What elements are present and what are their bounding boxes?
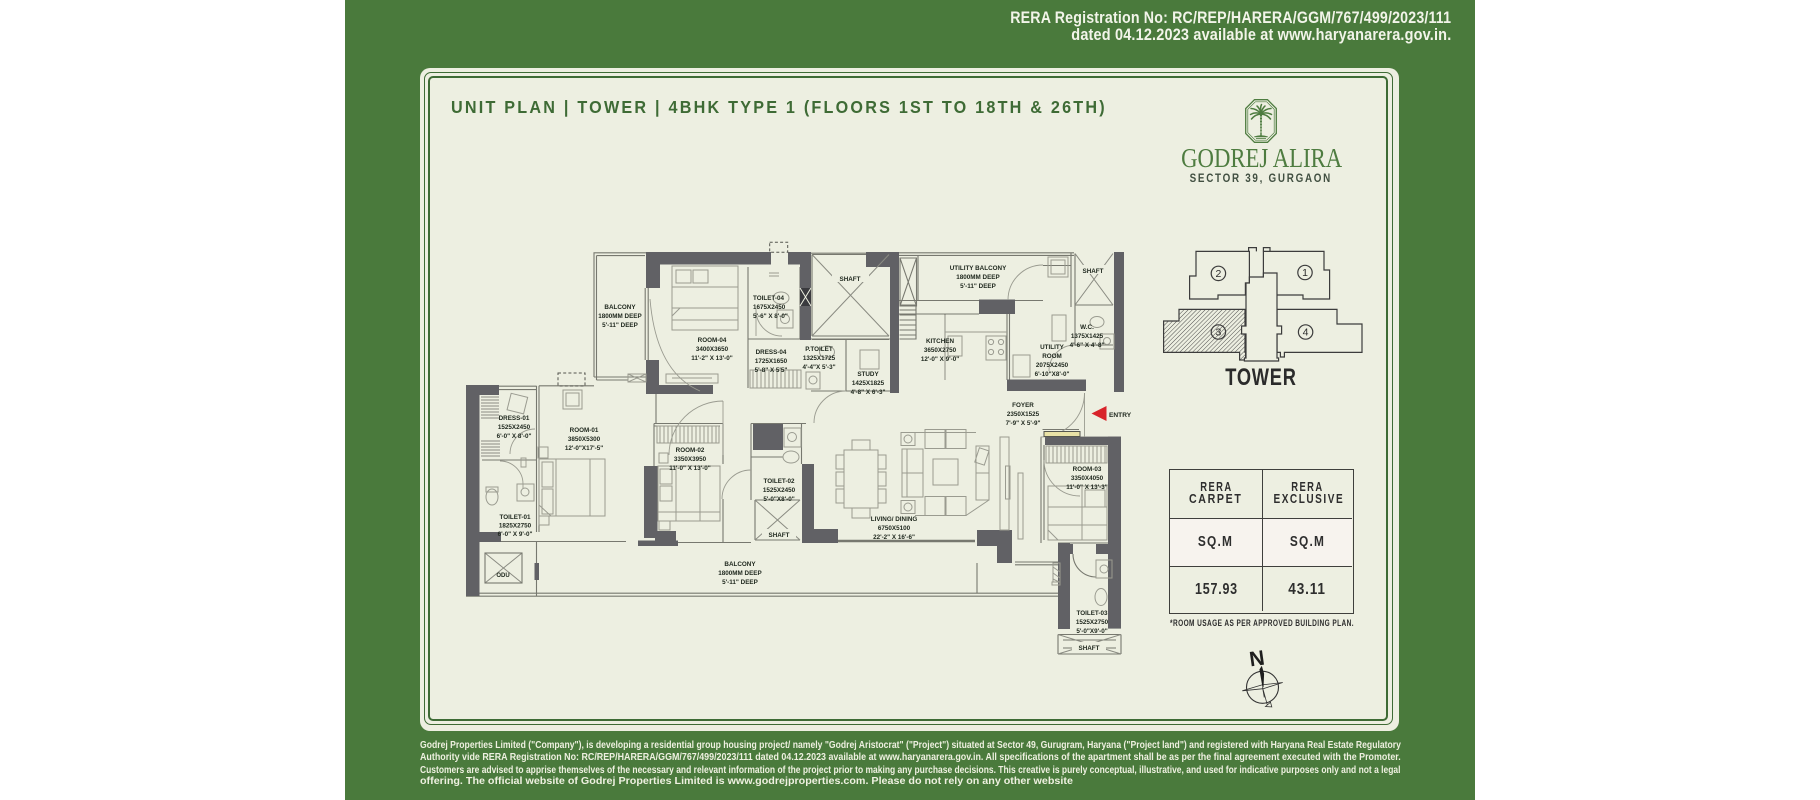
svg-text:3350X4050: 3350X4050 — [1071, 475, 1104, 482]
svg-text:DRESS-01: DRESS-01 — [499, 415, 530, 422]
svg-text:P.TOILET: P.TOILET — [805, 346, 833, 353]
svg-text:5'-11" DEEP: 5'-11" DEEP — [722, 579, 758, 586]
svg-text:1375X1425: 1375X1425 — [1071, 333, 1104, 340]
svg-text:ROOM-01: ROOM-01 — [570, 427, 599, 434]
svg-text:ROOM: ROOM — [1042, 353, 1062, 360]
svg-text:2075X2450: 2075X2450 — [1036, 362, 1069, 369]
svg-text:3850X5300: 3850X5300 — [568, 436, 601, 443]
svg-text:SHAFT: SHAFT — [769, 532, 790, 539]
svg-text:4: 4 — [1303, 327, 1309, 339]
svg-text:1825X2750: 1825X2750 — [499, 523, 532, 530]
svg-text:11'-0" X 13'-3": 11'-0" X 13'-3" — [1066, 484, 1108, 491]
svg-text:SHAFT: SHAFT — [1079, 645, 1100, 652]
svg-text:BALCONY: BALCONY — [604, 304, 636, 311]
svg-text:7'-9" X 5'-9": 7'-9" X 5'-9" — [1006, 420, 1041, 427]
svg-text:BALCONY: BALCONY — [724, 561, 756, 568]
svg-text:1425X1825: 1425X1825 — [852, 380, 885, 387]
svg-text:11'-0" X 13'-0": 11'-0" X 13'-0" — [669, 465, 711, 472]
svg-text:ROOM-04: ROOM-04 — [698, 337, 727, 344]
svg-text:SHAFT: SHAFT — [840, 276, 861, 283]
svg-text:5'-11" DEEP: 5'-11" DEEP — [960, 283, 996, 290]
svg-text:STUDY: STUDY — [857, 371, 879, 378]
svg-text:TOILET-02: TOILET-02 — [763, 478, 795, 485]
svg-text:2: 2 — [1215, 268, 1221, 280]
svg-text:ROOM-02: ROOM-02 — [676, 447, 705, 454]
svg-text:3: 3 — [1215, 327, 1221, 339]
svg-text:1725X1650: 1725X1650 — [755, 358, 788, 365]
svg-text:5'-8" X 5'5": 5'-8" X 5'5" — [755, 367, 788, 374]
svg-text:1800MM DEEP: 1800MM DEEP — [956, 274, 999, 281]
svg-text:KITCHEN: KITCHEN — [926, 338, 954, 345]
svg-text:UTILITY BALCONY: UTILITY BALCONY — [950, 265, 1007, 272]
svg-text:6'-10"X8'-0": 6'-10"X8'-0" — [1035, 371, 1070, 378]
svg-text:1325X1725: 1325X1725 — [803, 355, 836, 362]
svg-text:TOILET-03: TOILET-03 — [1076, 610, 1108, 617]
svg-text:5'-0"X8'-0": 5'-0"X8'-0" — [763, 496, 794, 503]
svg-text:6750X5100: 6750X5100 — [878, 525, 911, 532]
svg-text:TOILET-01: TOILET-01 — [499, 514, 531, 521]
svg-text:1525X2750: 1525X2750 — [1076, 619, 1109, 626]
svg-text:ENTRY: ENTRY — [1109, 412, 1132, 419]
svg-text:W.C.: W.C. — [1080, 324, 1094, 331]
svg-text:LIVING/ DINING: LIVING/ DINING — [871, 516, 918, 523]
svg-text:12'-0"X17'-5": 12'-0"X17'-5" — [565, 445, 603, 452]
svg-text:3350X3950: 3350X3950 — [674, 456, 707, 463]
svg-text:TOILET-04: TOILET-04 — [753, 295, 785, 302]
svg-text:FOYER: FOYER — [1012, 402, 1034, 409]
svg-text:1: 1 — [1302, 267, 1308, 279]
svg-text:4'-6" X 4'-8": 4'-6" X 4'-8" — [1070, 342, 1105, 349]
svg-text:12'-0" X 9'-0": 12'-0" X 9'-0" — [921, 356, 959, 363]
svg-text:1525X2450: 1525X2450 — [763, 487, 796, 494]
svg-text:6'-0" X 9'-0": 6'-0" X 9'-0" — [498, 531, 533, 538]
svg-text:3650X2750: 3650X2750 — [924, 347, 957, 354]
svg-text:ROOM-03: ROOM-03 — [1073, 466, 1102, 473]
svg-text:5'-11" DEEP: 5'-11" DEEP — [602, 322, 638, 329]
svg-text:4'-8" X 6'-3": 4'-8" X 6'-3" — [851, 389, 886, 396]
svg-text:1675X2450: 1675X2450 — [753, 304, 786, 311]
svg-text:UTILITY: UTILITY — [1040, 344, 1065, 351]
svg-text:N: N — [1248, 647, 1266, 672]
svg-text:SHAFT: SHAFT — [1083, 268, 1104, 275]
svg-text:11'-2" X 13'-0": 11'-2" X 13'-0" — [691, 355, 733, 362]
svg-text:22'-2" X 16'-6": 22'-2" X 16'-6" — [873, 534, 915, 541]
svg-text:6'-0" X 8'-0": 6'-0" X 8'-0" — [497, 433, 532, 440]
svg-text:2350X1525: 2350X1525 — [1007, 411, 1040, 418]
svg-text:1525X2450: 1525X2450 — [498, 424, 531, 431]
svg-text:DRESS-04: DRESS-04 — [756, 349, 787, 356]
svg-text:1800MM DEEP: 1800MM DEEP — [598, 313, 641, 320]
svg-text:1800MM DEEP: 1800MM DEEP — [718, 570, 761, 577]
svg-text:5'-0"X9'-0": 5'-0"X9'-0" — [1076, 628, 1107, 635]
svg-text:4'-4"X 5'-3": 4'-4"X 5'-3" — [802, 364, 835, 371]
svg-text:3400X3650: 3400X3650 — [696, 346, 729, 353]
svg-text:5'-6" X 8'-0": 5'-6" X 8'-0" — [753, 313, 788, 320]
svg-text:ODU: ODU — [496, 573, 509, 579]
